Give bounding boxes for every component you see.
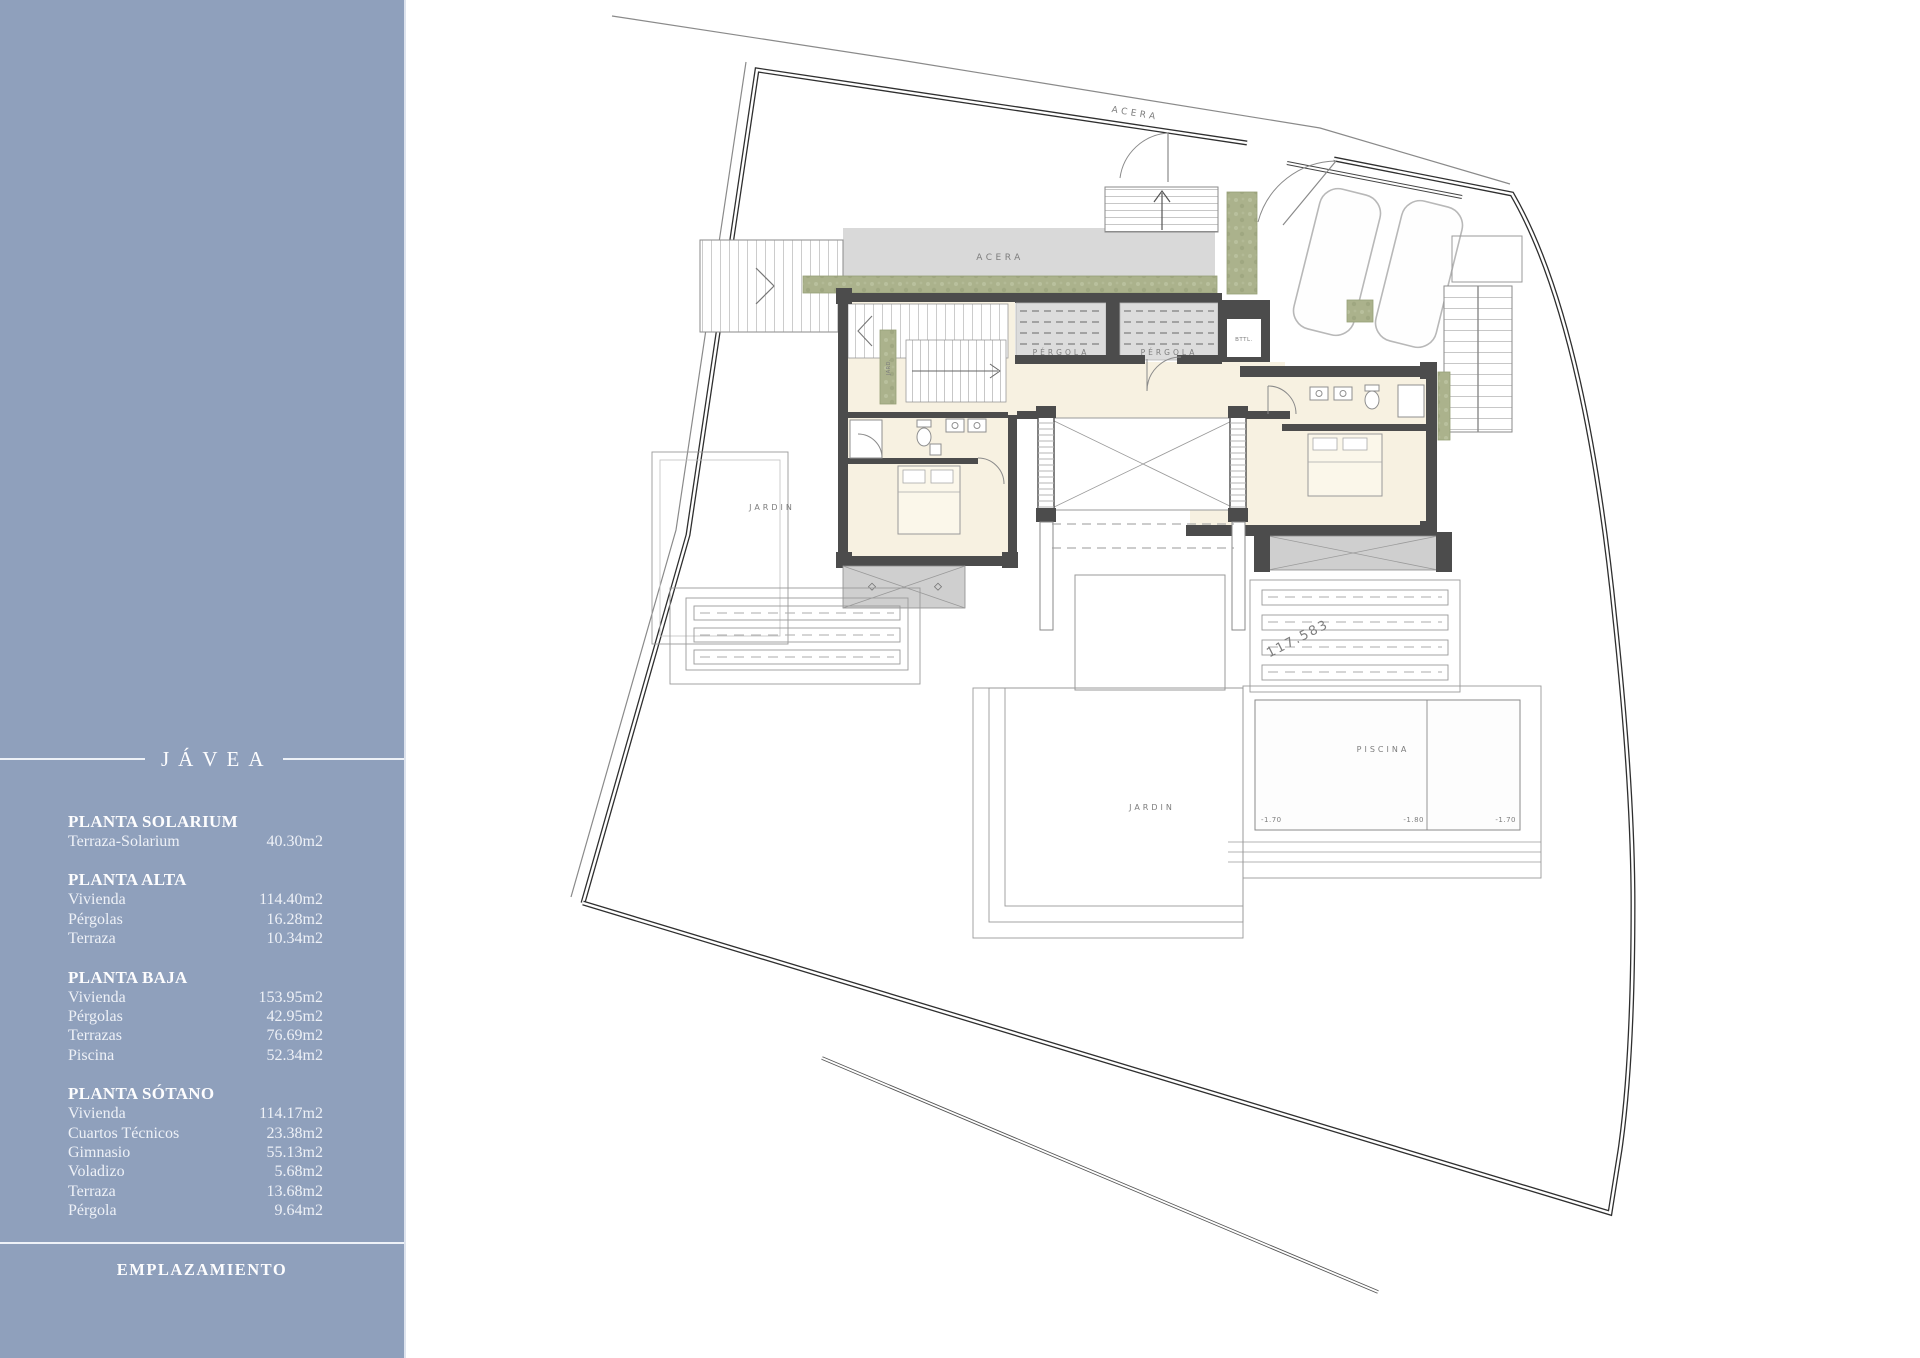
section-planta-solarium: PLANTA SOLARIUM Terraza-Solarium 40.30m2 [68,812,323,851]
area-row: Cuartos Técnicos 23.38m2 [68,1124,323,1143]
east-deck [1254,532,1452,572]
area-label: Vivienda [68,988,126,1007]
title-rule-right [283,758,405,760]
area-value: 40.30m2 [267,832,323,851]
pergolas: PÉRGOLA PÉRGOLA BTTL. [1016,296,1270,362]
area-value: 10.34m2 [267,929,323,948]
project-title: JÁVEA [161,747,273,772]
pool-level-right: -1.70 [1495,816,1516,824]
area-row: Terrazas 76.69m2 [68,1026,323,1045]
area-value: 9.64m2 [275,1201,323,1220]
area-value: 55.13m2 [267,1143,323,1162]
east-stairs [1444,286,1512,432]
area-label: Terraza-Solarium [68,832,180,851]
planter-east [1438,372,1450,440]
section-heading: PLANTA SOLARIUM [68,812,323,832]
area-label: Vivienda [68,1104,126,1123]
area-value: 23.38m2 [267,1124,323,1143]
area-value: 16.28m2 [267,910,323,929]
sidebar-edge-line [404,0,406,1358]
slats-east [1250,580,1460,692]
west-deck [843,566,965,608]
area-label: Cuartos Técnicos [68,1124,179,1143]
facade-wall [838,293,1222,303]
area-row: Pérgola 9.64m2 [68,1201,323,1220]
area-row: Vivienda 114.17m2 [68,1104,323,1123]
area-label: Terraza [68,1182,116,1201]
area-row: Pérgolas 16.28m2 [68,910,323,929]
area-label: Terrazas [68,1026,122,1045]
area-row: Terraza 13.68m2 [68,1182,323,1201]
area-row: Gimnasio 55.13m2 [68,1143,323,1162]
section-planta-sotano: PLANTA SÓTANO Vivienda 114.17m2 Cuartos … [68,1084,323,1220]
area-value: 5.68m2 [275,1162,323,1181]
jard-strip-label: JARD. [886,359,892,376]
sidebar-footer-label: EMPLAZAMIENTO [0,1260,404,1280]
area-label: Terraza [68,929,116,948]
south-garden-steps [973,688,1243,938]
area-row: Voladizo 5.68m2 [68,1162,323,1181]
area-row: Vivienda 153.95m2 [68,988,323,1007]
page: ACERA ACERA [0,0,1920,1358]
pedestrian-gate [1120,133,1168,182]
area-label: Voladizo [68,1162,125,1181]
pergola-pier [1106,296,1120,360]
acera-street-label: ACERA [1111,105,1160,123]
main-stair [906,340,1006,402]
section-heading: PLANTA ALTA [68,870,323,890]
pool-level-mid: -1.80 [1403,816,1424,824]
planter-strip-north [803,276,1217,293]
west-bed [898,466,960,534]
pool [1255,700,1520,830]
utility-room-label: BTTL. [1235,337,1253,343]
section-heading: PLANTA BAJA [68,968,323,988]
area-value: 52.34m2 [267,1046,323,1065]
area-row: Piscina 52.34m2 [68,1046,323,1065]
area-label: Gimnasio [68,1143,130,1162]
area-label: Pérgolas [68,910,123,929]
pool-level-left: -1.70 [1261,816,1282,824]
bin-enclosure [1452,236,1522,282]
project-title-row: JÁVEA [0,744,404,774]
area-value: 76.69m2 [267,1026,323,1045]
planter-ne [1347,300,1373,322]
pool-area: PISCINA -1.70 -1.80 -1.70 [1228,686,1541,878]
area-label: Vivienda [68,890,126,909]
area-value: 13.68m2 [267,1182,323,1201]
area-label: Pérgola [68,1201,117,1220]
planter-strip-entry [1227,192,1257,294]
section-heading: PLANTA SÓTANO [68,1084,323,1104]
jardin-south-label: JARDIN [1128,803,1175,812]
title-rule-left [0,758,145,760]
area-value: 153.95m2 [259,988,323,1007]
area-value: 42.95m2 [267,1007,323,1026]
area-row: Terraza 10.34m2 [68,929,323,948]
central-void [1036,406,1248,690]
east-bed [1308,434,1382,496]
section-planta-baja: PLANTA BAJA Vivienda 153.95m2 Pérgolas 4… [68,968,323,1066]
sidebar: JÁVEA PLANTA SOLARIUM Terraza-Solarium 4… [0,0,404,1358]
acera-walk-label: ACERA [976,253,1024,263]
piscina-label: PISCINA [1357,745,1410,754]
entry-stairs [1105,187,1218,232]
sidebar-divider [0,1242,404,1244]
area-row: Terraza-Solarium 40.30m2 [68,832,323,851]
area-row: Pérgolas 42.95m2 [68,1007,323,1026]
area-value: 114.17m2 [259,1104,323,1123]
area-schedule: PLANTA SOLARIUM Terraza-Solarium 40.30m2… [68,812,323,1221]
area-label: Pérgolas [68,1007,123,1026]
area-label: Piscina [68,1046,114,1065]
utility-room: BTTL. [1218,300,1270,362]
section-planta-alta: PLANTA ALTA Vivienda 114.40m2 Pérgolas 1… [68,870,323,948]
jardin-west-label: JARDIN [748,503,795,512]
area-value: 114.40m2 [259,890,323,909]
area-row: Vivienda 114.40m2 [68,890,323,909]
